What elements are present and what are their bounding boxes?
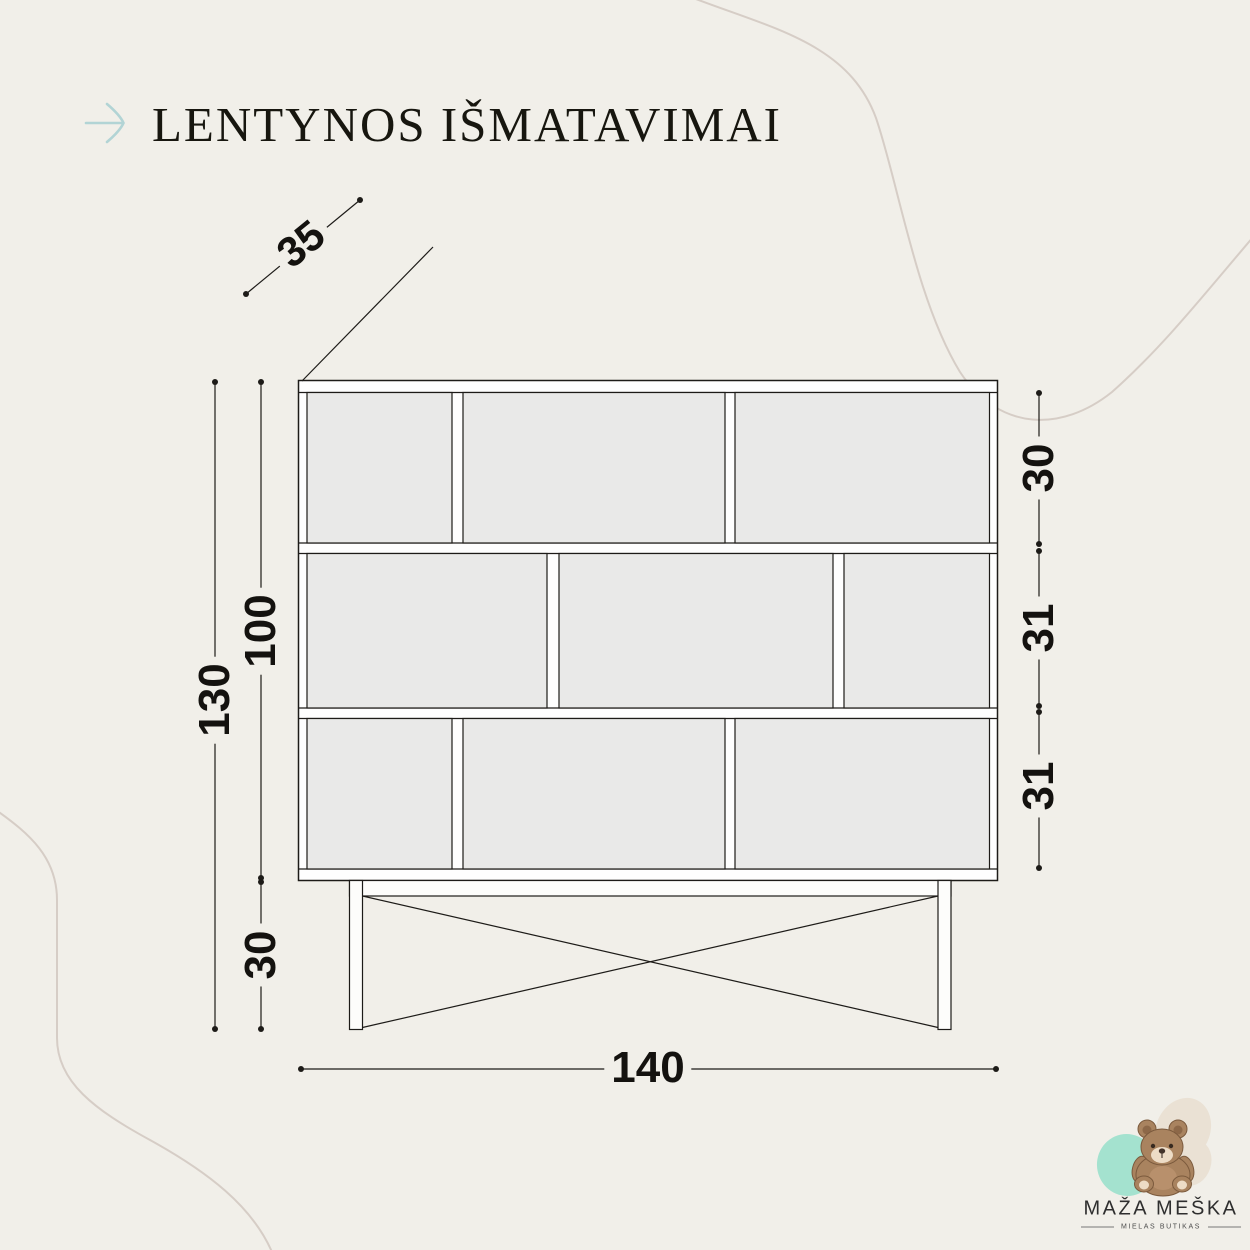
shelf-compartments	[307, 393, 990, 870]
compartment-top-3	[735, 393, 990, 544]
shelf-base	[350, 881, 952, 1030]
base-leg-right	[938, 881, 951, 1030]
page-title: LENTYNOS IŠMATAVIMAI	[152, 96, 782, 153]
dim-label-base-height: 30	[237, 924, 285, 987]
tagline-rule-right	[1208, 1227, 1241, 1228]
bear-illustration	[1130, 1120, 1197, 1196]
dim-label-total-height: 130	[191, 656, 239, 743]
brand-tagline: MIELAS BUTIKAS	[1081, 1224, 1241, 1231]
compartment-top-2	[463, 393, 725, 544]
dim-label-top-row: 30	[1015, 437, 1063, 500]
base-leg-left	[350, 881, 363, 1030]
compartment-bot-2	[463, 719, 725, 870]
compartment-mid-2	[559, 554, 833, 709]
dim-label-middle-row: 31	[1015, 597, 1063, 660]
teddy-bear-icon	[1085, 1085, 1245, 1205]
depth-perspective-line	[302, 247, 433, 381]
tagline-rule-left	[1081, 1227, 1114, 1228]
decor-curve-bottom-left	[0, 810, 272, 1250]
shelf-body	[299, 247, 998, 1030]
tagline-text: MIELAS BUTIKAS	[1121, 1224, 1201, 1231]
arrow-right-icon	[84, 101, 128, 145]
compartment-top-1	[307, 393, 452, 544]
poster-page: LENTYNOS IŠMATAVIMAI 35 130 100 30 30 31…	[0, 0, 1250, 1250]
compartment-bot-1	[307, 719, 452, 870]
base-rail	[350, 881, 952, 897]
compartment-mid-3	[844, 554, 990, 709]
dim-label-body-height: 100	[237, 587, 285, 674]
brand-name: MAŽA MEŠKA	[1083, 1198, 1238, 1221]
compartment-mid-1	[307, 554, 547, 709]
compartment-bot-3	[735, 719, 990, 870]
dim-label-bottom-row: 31	[1015, 755, 1063, 818]
decor-curve-top-right	[688, 0, 1250, 420]
dim-label-width: 140	[604, 1044, 691, 1092]
